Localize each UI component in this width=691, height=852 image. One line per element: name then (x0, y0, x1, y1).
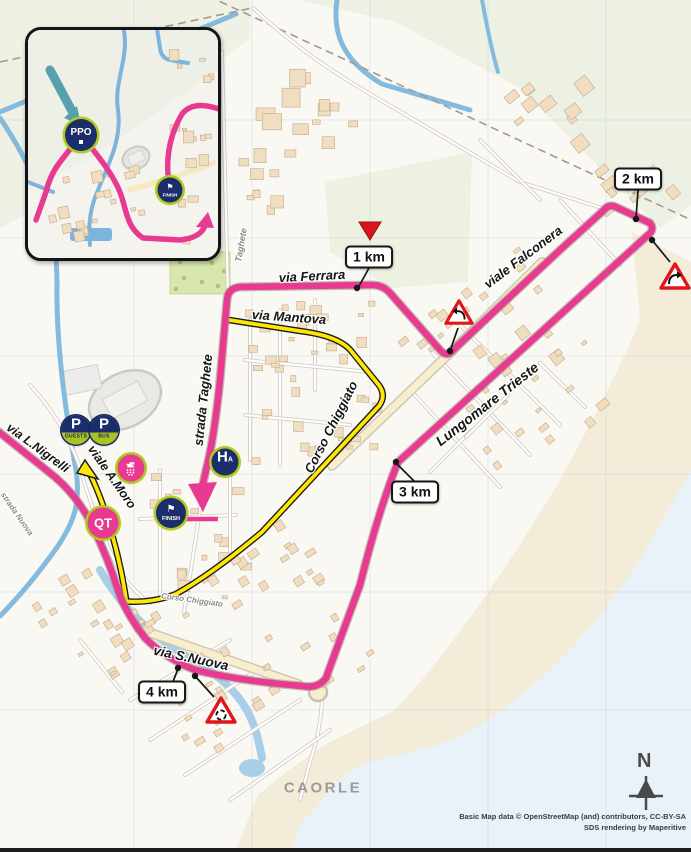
north-arrow-icon (624, 772, 668, 812)
km-marker-3: 3 km (391, 481, 439, 504)
curve-left-warning-icon (443, 298, 475, 326)
route-map: via Ferrara via Mantova Corso Chiggiato … (0, 0, 691, 852)
qt-marker: QT (88, 508, 119, 539)
km-marker-1: 1 km (345, 246, 393, 269)
finish-marker: ⚑ FINISH (156, 498, 186, 528)
qt-label: QT (94, 516, 112, 531)
inset-finish-label: FINISH (163, 192, 178, 197)
inset-base (28, 30, 218, 258)
ppo-label: PPO (70, 127, 91, 138)
hospital-marker: H A (212, 449, 239, 476)
north-label: N (637, 750, 651, 773)
hospital-sub: A (228, 457, 233, 464)
attribution-line-2: SDS rendering by Maperitive (459, 823, 686, 834)
hospital-letter: H (217, 449, 228, 466)
attribution-line-1: Basic Map data © OpenStreetMap (and) con… (459, 812, 686, 823)
parking-letter: P (99, 416, 109, 433)
city-label: CAORLE (284, 780, 362, 797)
km-marker-2: 2 km (614, 168, 662, 191)
parking-guests-marker: P GUESTS (62, 416, 91, 445)
finish-flag-icon: ⚑ (167, 505, 176, 515)
inset-finish-marker: ⚑ FINISH (158, 178, 183, 203)
shower-icon (123, 460, 139, 476)
inset-map: PPO ⚑ FINISH (25, 27, 221, 261)
ppo-marker: PPO (65, 119, 97, 151)
finish-label: FINISH (162, 516, 180, 522)
parking-bus-marker: P BUS (90, 416, 119, 445)
parking-letter: P (71, 416, 81, 433)
flamme-rouge-icon (357, 220, 383, 242)
shower-marker (118, 455, 145, 482)
bottom-border (0, 848, 691, 852)
finish-flag-icon: ⚑ (166, 183, 173, 191)
ppo-square-icon (79, 140, 83, 144)
roundabout-warning-icon (204, 695, 238, 725)
map-attribution: Basic Map data © OpenStreetMap (and) con… (459, 812, 686, 834)
km-marker-4: 4 km (138, 681, 186, 704)
curve-right-warning-icon (658, 261, 691, 291)
